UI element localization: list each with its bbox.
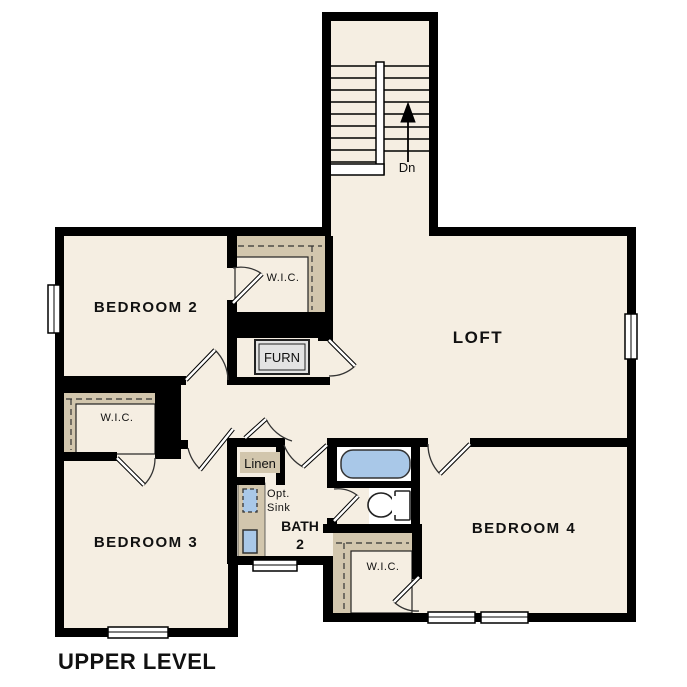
wall-wic2-bottom-band xyxy=(227,312,333,331)
wall-bath-right xyxy=(411,438,420,532)
room-label-loft: LOFT xyxy=(453,328,503,347)
room-label-bedroom2: BEDROOM 2 xyxy=(94,299,198,316)
label-furnace: FURN xyxy=(264,350,300,365)
wall-bed2-wic2-upper xyxy=(227,236,237,268)
wall-tower-right xyxy=(429,12,438,236)
floorplan-canvas: Dn xyxy=(0,0,687,687)
wall-linen-bottom xyxy=(237,477,265,485)
exterior-notch xyxy=(238,564,323,638)
label-wic-bedroom2: W.I.C. xyxy=(267,272,300,284)
label-bath2-line1: BATH xyxy=(281,518,319,534)
wall-bedroom3-right-lower xyxy=(228,564,238,637)
window-bedroom4-bottom-1 xyxy=(428,612,475,623)
label-linen: Linen xyxy=(244,456,276,471)
wall-bedroom2-bottom xyxy=(55,376,186,385)
wall-top-right xyxy=(438,227,636,236)
label-bath2-line2: 2 xyxy=(296,536,304,552)
wall-wic2-right xyxy=(325,236,333,316)
wic2-floor xyxy=(235,257,308,314)
wall-bedroom4-bottom xyxy=(323,613,636,622)
wall-right xyxy=(627,227,636,622)
page-title: UPPER LEVEL xyxy=(58,649,216,674)
wall-wic4-right xyxy=(412,524,422,579)
floorplan-upper-level: Dn xyxy=(0,0,687,687)
optional-sink-fixture xyxy=(243,489,257,512)
wall-furn-top xyxy=(227,330,333,338)
label-wic-bedroom4: W.I.C. xyxy=(367,561,400,573)
label-wic-bedroom3: W.I.C. xyxy=(101,412,134,424)
wall-wic3-top xyxy=(55,384,165,393)
wall-bath-compartment-bottom xyxy=(323,524,420,533)
wall-tub-front xyxy=(333,481,411,488)
wall-wic3-bottom xyxy=(55,452,117,461)
wall-hall-column-stub xyxy=(155,440,188,449)
stair-rail xyxy=(376,62,384,174)
wall-tower-left xyxy=(322,12,331,236)
wall-bedroom4-top xyxy=(470,438,628,447)
room-label-bedroom4: BEDROOM 4 xyxy=(472,520,576,537)
window-bedroom2-left xyxy=(48,285,60,333)
room-label-bedroom3: BEDROOM 3 xyxy=(94,534,198,551)
window-bedroom4-bottom-2 xyxy=(481,612,528,623)
stairs-down-label: Dn xyxy=(399,160,416,175)
bathtub-fixture xyxy=(341,450,410,478)
wall-tower-top xyxy=(322,12,438,21)
wall-wic4-left-exterior xyxy=(323,556,333,622)
label-opt-sink-1: Opt. xyxy=(267,488,290,500)
wall-furn-bottom xyxy=(227,377,330,385)
sink-fixture xyxy=(243,530,257,553)
window-loft-right xyxy=(625,314,637,359)
wall-vestibule-left xyxy=(227,438,237,564)
wall-furn-left xyxy=(227,330,237,384)
window-bedroom3-bottom xyxy=(108,627,168,638)
label-opt-sink-2: Sink xyxy=(267,502,290,514)
wall-top-left xyxy=(55,227,322,236)
window-bath-bottom xyxy=(253,560,297,571)
stair-landing-edge xyxy=(328,164,384,175)
